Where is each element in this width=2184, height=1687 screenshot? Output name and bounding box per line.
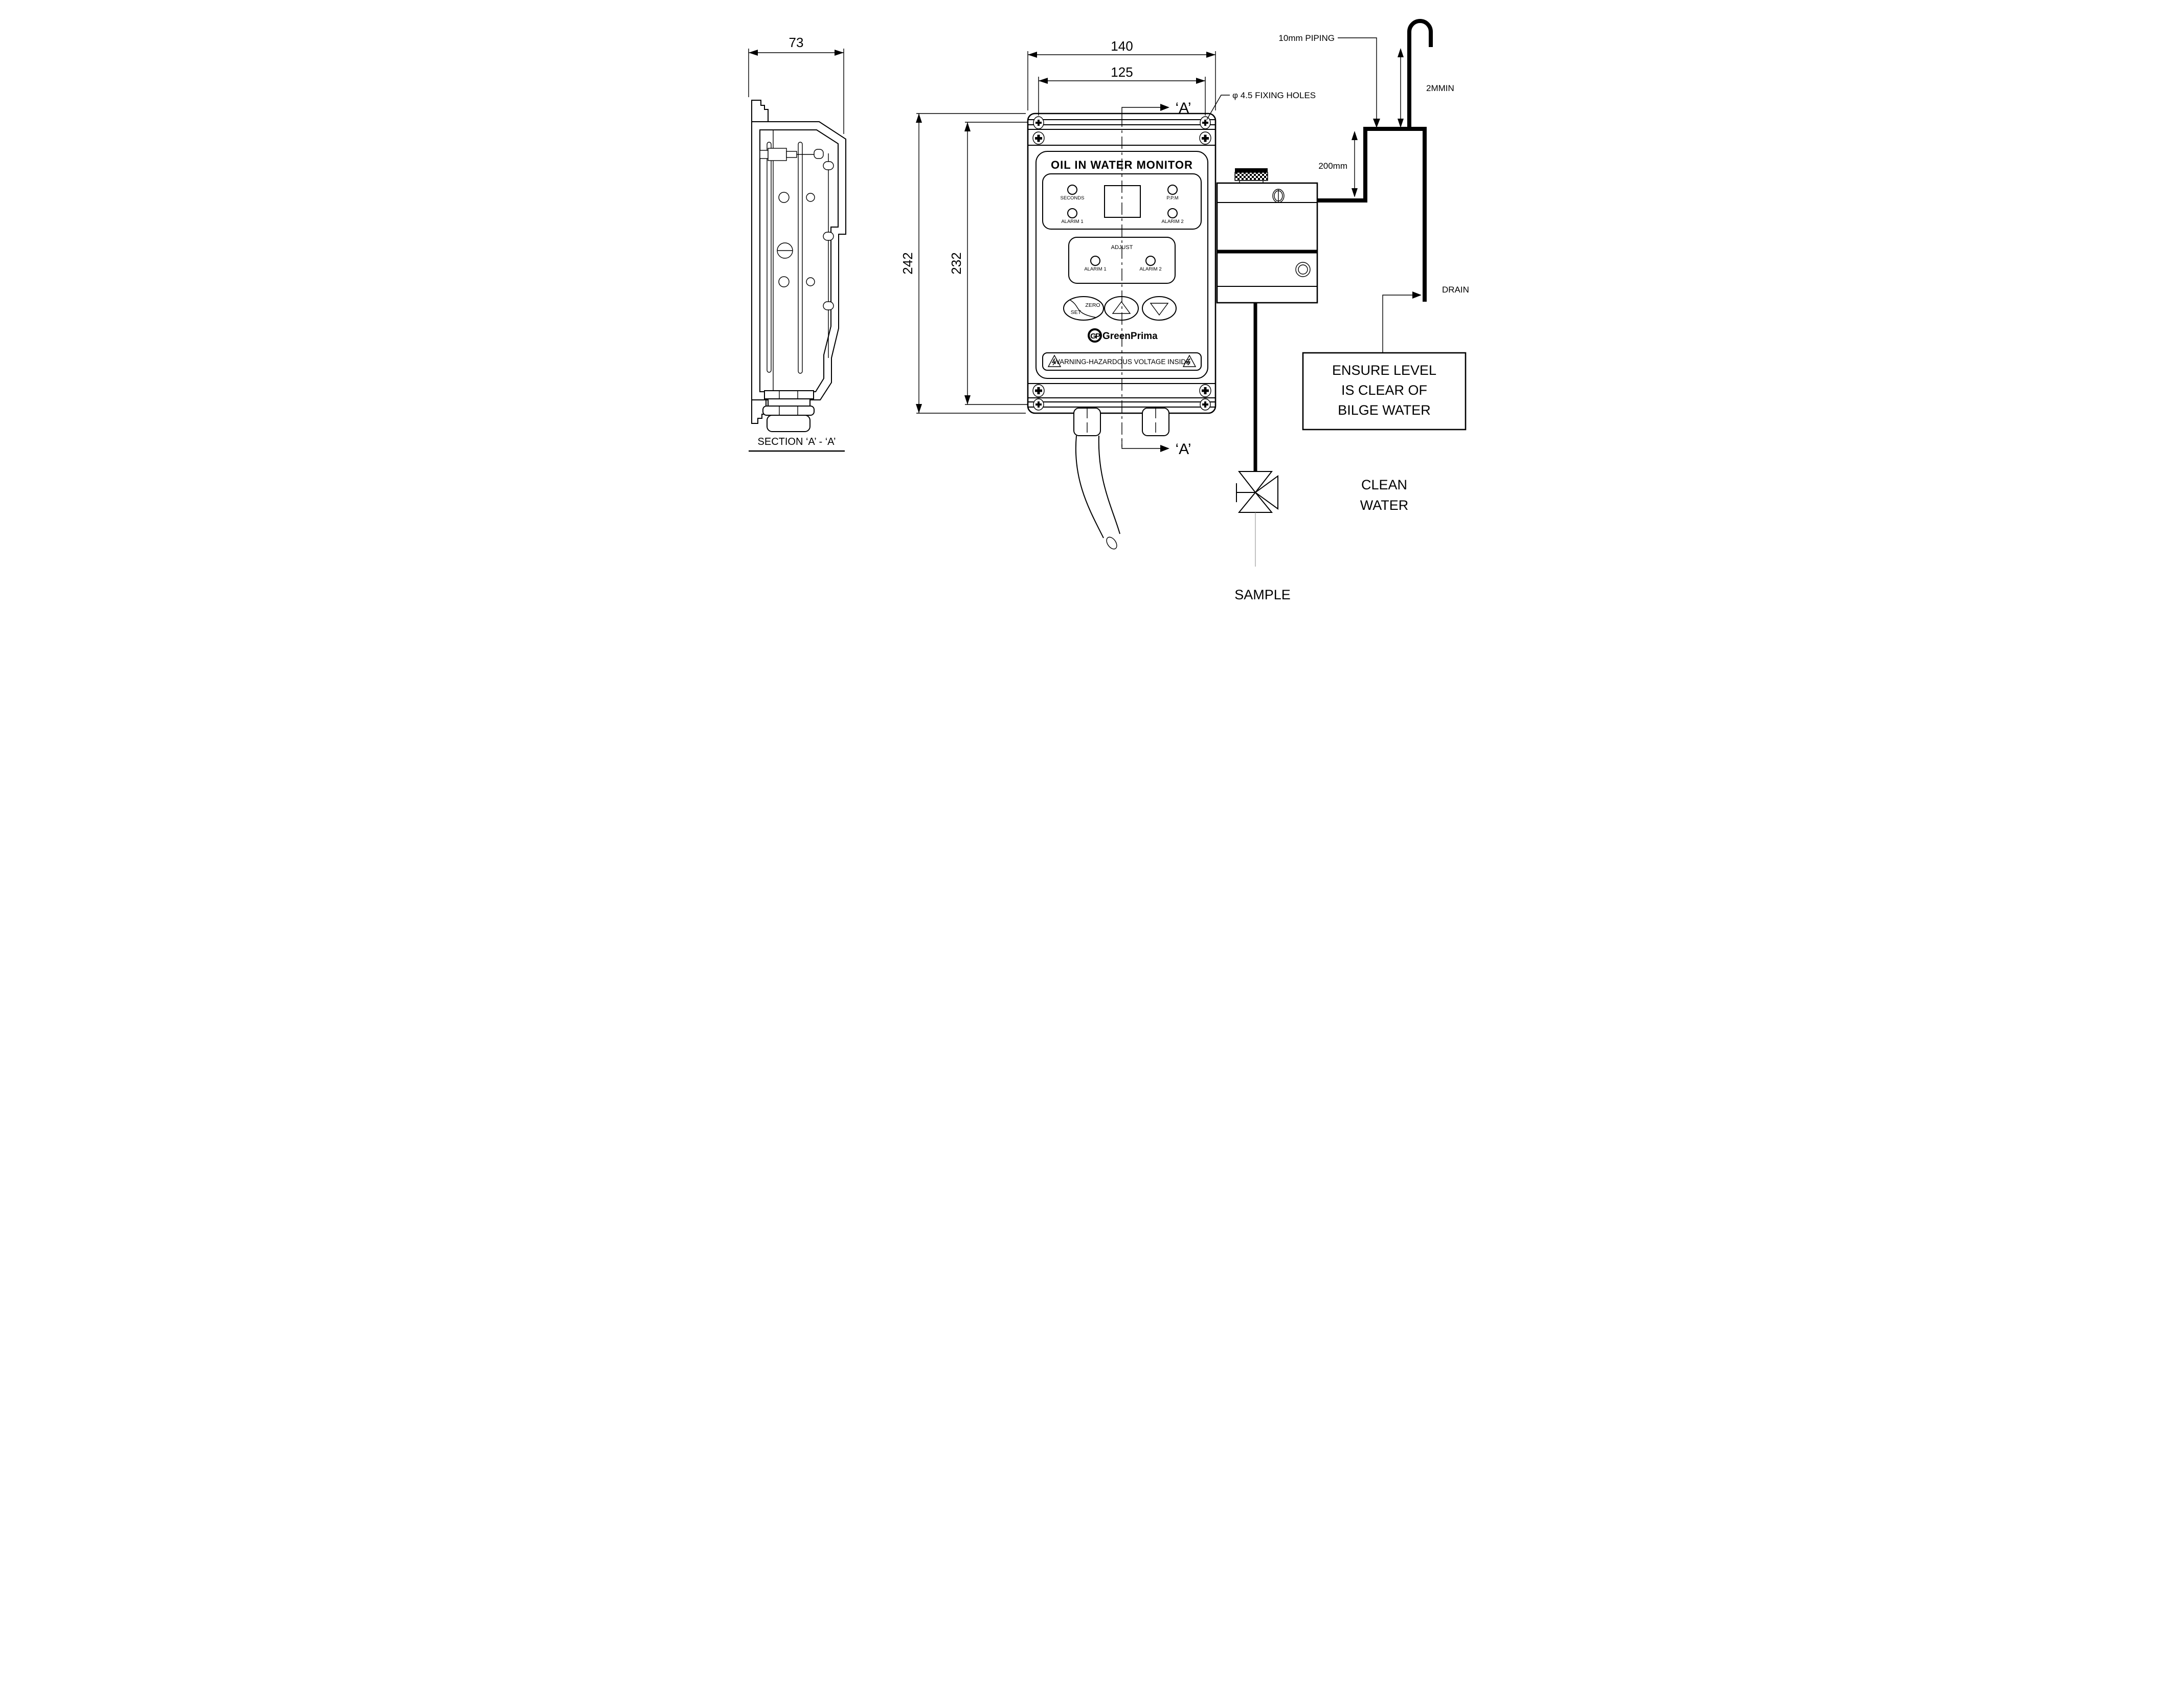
- sample-label: SAMPLE: [1234, 587, 1291, 602]
- standoff-cap: [814, 149, 823, 159]
- adjust-alarm2-label: ALARIM 2: [1139, 266, 1161, 272]
- section-cable-gland: [763, 391, 814, 432]
- knob-top: [1235, 168, 1268, 172]
- cable-gland-left: [1074, 408, 1100, 436]
- dim-242-value: 242: [900, 252, 915, 274]
- dim-73-value: 73: [789, 35, 803, 50]
- level-note-line2: IS CLEAR OF: [1341, 383, 1427, 398]
- cable-gland-right: [1142, 408, 1169, 436]
- paper-background: [691, 0, 1493, 619]
- adjustment-knob[interactable]: [1235, 172, 1268, 181]
- clean-water-line1: CLEAN: [1361, 477, 1407, 492]
- section-caption: SECTION ‘A’ - ‘A’: [757, 436, 836, 447]
- fixing-screw-top-left: [1033, 117, 1044, 129]
- fixing-screw-bottom-left: [1033, 399, 1044, 410]
- connector-pin: [823, 232, 834, 240]
- dim-125-value: 125: [1111, 64, 1133, 80]
- brand-logo: GP GreenPrima: [1089, 329, 1158, 342]
- vent-height-label: 2MMIN: [1426, 83, 1454, 93]
- technical-drawing: 73: [691, 0, 1493, 619]
- loop-height-label: 200mm: [1318, 161, 1347, 171]
- adjust-alarm1-label: ALARIM 1: [1084, 266, 1106, 272]
- cover-screw-top-left: [1033, 132, 1044, 144]
- tie-rod-right: [798, 142, 802, 373]
- section-marker-bottom-label: ‘A’: [1175, 441, 1191, 458]
- level-note-line1: ENSURE LEVEL: [1332, 363, 1436, 378]
- led-ppm-label: P.P.M: [1166, 195, 1179, 201]
- drain-label: DRAIN: [1442, 285, 1469, 295]
- fixing-screw-top-right: [1200, 117, 1210, 129]
- dim-140-value: 140: [1111, 38, 1133, 54]
- tie-rod-left: [767, 142, 771, 372]
- cover-screw-bottom-left: [1033, 385, 1044, 397]
- led-alarm2-label: ALARIM 2: [1161, 219, 1183, 224]
- set-label: SET: [1070, 309, 1081, 316]
- connector-pin: [823, 162, 834, 170]
- connector-pin: [823, 302, 834, 310]
- dim-232-value: 232: [949, 252, 964, 274]
- led-seconds-label: SECONDS: [1060, 195, 1084, 201]
- fixing-screw-bottom-right: [1200, 399, 1210, 410]
- fixing-holes-label: φ 4.5 FIXING HOLES: [1232, 91, 1316, 100]
- cover-screw-bottom-right: [1200, 385, 1211, 397]
- brand-name: GreenPrima: [1102, 331, 1158, 342]
- section-marker-top-label: ‘A’: [1175, 100, 1191, 117]
- cover-screw-top-right: [1200, 132, 1211, 144]
- led-alarm1-label: ALARIM 1: [1061, 219, 1083, 224]
- clean-water-line2: WATER: [1360, 498, 1408, 513]
- zero-label: ZERO: [1085, 302, 1100, 308]
- drawing-sheet: 73: [691, 0, 1493, 619]
- logo-monogram: GP: [1090, 332, 1100, 341]
- level-note-line3: BILGE WATER: [1338, 402, 1431, 418]
- piping-label: 10mm PIPING: [1278, 33, 1335, 43]
